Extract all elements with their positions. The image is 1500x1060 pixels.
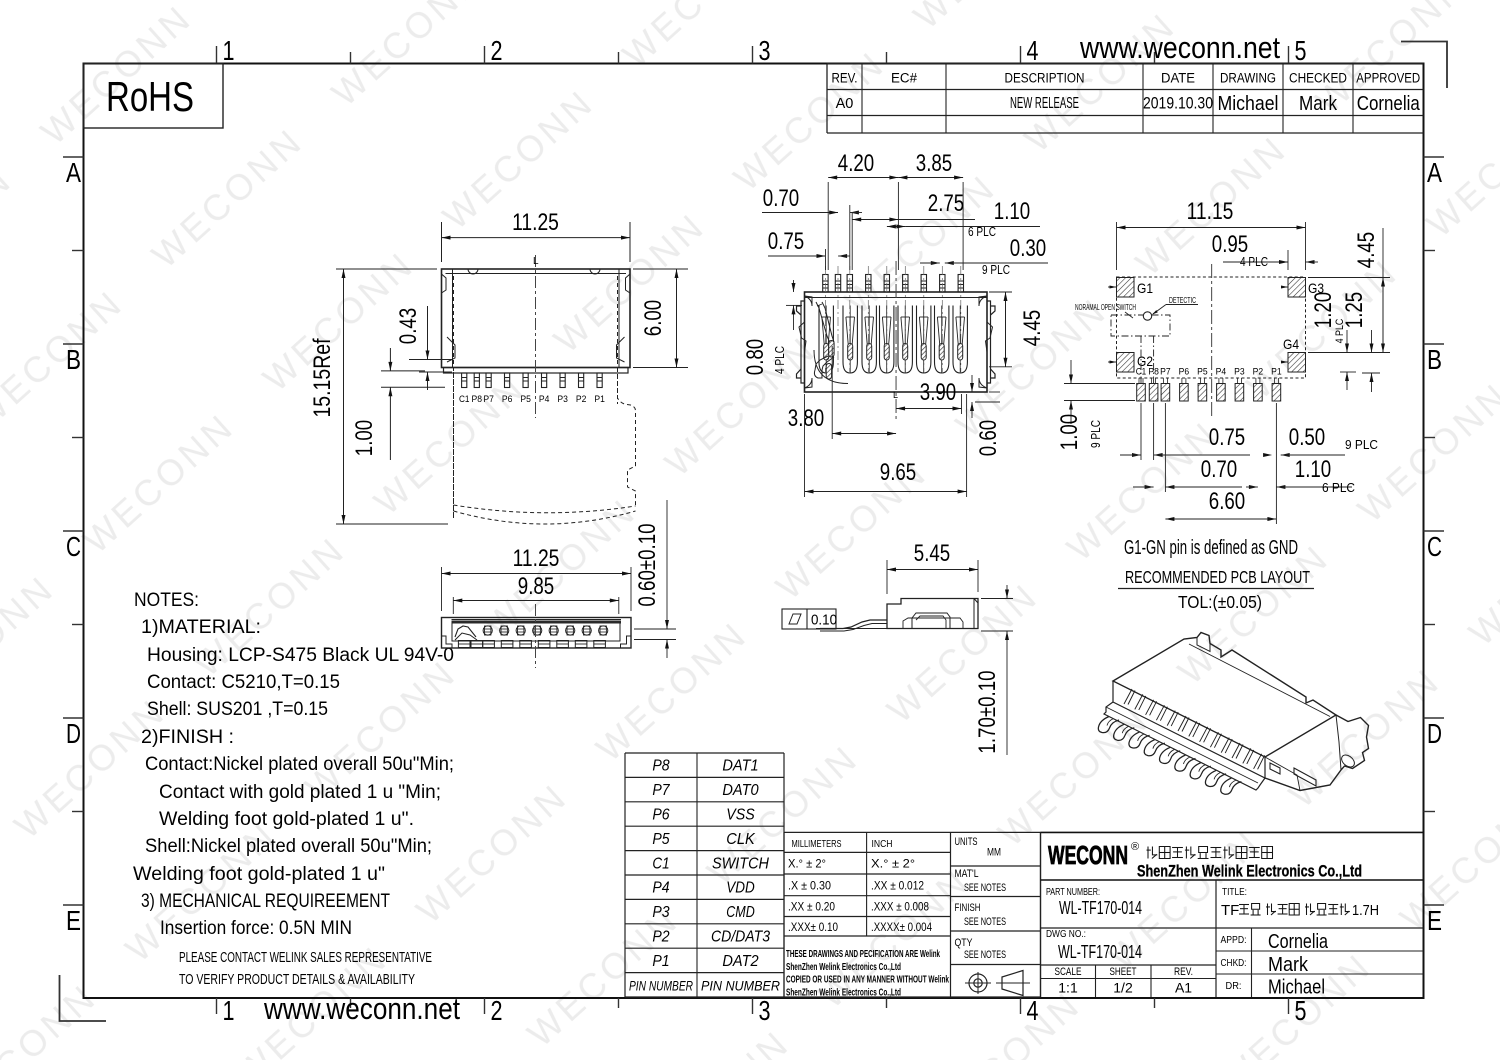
svg-text:0.75: 0.75	[1209, 424, 1245, 451]
svg-text:www.weconn.net: www.weconn.net	[1079, 30, 1280, 65]
svg-text:P3: P3	[557, 394, 568, 405]
svg-text:.XX ± 0.20: .XX ± 0.20	[788, 900, 835, 914]
svg-text:.XX ± 0.012: .XX ± 0.012	[871, 878, 924, 892]
svg-text:PIN NUMBER: PIN NUMBER	[701, 977, 780, 993]
svg-text:DRAWING: DRAWING	[1220, 71, 1276, 86]
svg-text:TOL:(±0.05): TOL:(±0.05)	[1178, 592, 1262, 612]
svg-text:Shell: SUS201 ,T=0.15: Shell: SUS201 ,T=0.15	[147, 699, 328, 720]
svg-text:CD/DAT3: CD/DAT3	[711, 929, 770, 946]
svg-text:Michael: Michael	[1268, 977, 1325, 999]
svg-text:E: E	[1427, 905, 1442, 936]
svg-text:A: A	[66, 157, 81, 188]
svg-text:REV.: REV.	[1174, 966, 1193, 978]
svg-text:Contact with gold plated 1 u ": Contact with gold plated 1 u "Min;	[159, 782, 441, 803]
svg-text:3: 3	[759, 995, 771, 1026]
svg-text:DAT2: DAT2	[722, 953, 759, 970]
svg-text:MILLIMETERS: MILLIMETERS	[792, 838, 842, 850]
svg-text:9.65: 9.65	[880, 459, 916, 486]
svg-text:L: L	[893, 390, 898, 400]
svg-text:ShenZhen Welink Electronics Co: ShenZhen Welink Electronics Co.,Ltd	[1137, 862, 1362, 881]
svg-text:SEE NOTES: SEE NOTES	[964, 949, 1006, 961]
svg-text:11.25: 11.25	[513, 545, 560, 572]
svg-text:DETECTIC: DETECTIC	[1169, 295, 1196, 305]
svg-text:B: B	[1427, 344, 1442, 375]
svg-text:P1: P1	[1271, 367, 1282, 378]
svg-text:4 PLC: 4 PLC	[773, 346, 787, 374]
svg-text:1.00: 1.00	[351, 420, 378, 456]
svg-text:A0: A0	[836, 96, 854, 112]
svg-text:ShenZhen Welink Electronics Co: ShenZhen Welink Electronics Co.,Ltd	[786, 961, 901, 973]
svg-text:Mark: Mark	[1268, 954, 1309, 976]
svg-text:TO VERIFY PRODUCT DETAILS & AV: TO VERIFY PRODUCT DETAILS & AVAILABILITY	[179, 972, 415, 988]
svg-text:2019.10.30: 2019.10.30	[1143, 94, 1213, 113]
svg-text:9 PLC: 9 PLC	[1089, 420, 1103, 448]
svg-text:1: 1	[223, 35, 235, 66]
svg-text:1.10: 1.10	[1295, 456, 1331, 483]
svg-text:VDD: VDD	[726, 880, 754, 897]
svg-text:Shell:Nickel plated overall 50: Shell:Nickel plated overall 50u"Min;	[145, 836, 432, 857]
svg-text:6.00: 6.00	[640, 300, 667, 336]
svg-text:ShenZhen Welink Electronics Co: ShenZhen Welink Electronics Co.,Ltd	[786, 986, 901, 998]
svg-text:CHECKED: CHECKED	[1289, 71, 1347, 86]
svg-text:Cornelia: Cornelia	[1357, 93, 1421, 115]
svg-text:3.90: 3.90	[920, 379, 956, 406]
svg-text:C: C	[1427, 531, 1442, 562]
svg-text:P7: P7	[483, 394, 494, 405]
svg-text:Michael: Michael	[1218, 93, 1279, 115]
svg-text:0.43: 0.43	[395, 308, 422, 344]
svg-text:2.75: 2.75	[928, 190, 964, 217]
svg-text:1.7H: 1.7H	[1352, 902, 1379, 919]
svg-text:APPD:: APPD:	[1221, 934, 1247, 946]
svg-text:B: B	[66, 344, 81, 375]
svg-text:P5: P5	[1197, 367, 1208, 378]
svg-text:0.10: 0.10	[811, 612, 837, 629]
svg-text:Mark: Mark	[1299, 93, 1338, 115]
svg-text:PLEASE CONTACT WELINK SALES RE: PLEASE CONTACT WELINK SALES REPRESENTATI…	[179, 950, 432, 966]
svg-text:Housing: LCP-S475 Black UL 94V: Housing: LCP-S475 Black UL 94V-0	[147, 645, 454, 666]
svg-text:DAT0: DAT0	[722, 782, 759, 799]
svg-text:NEW RELEASE: NEW RELEASE	[1010, 95, 1079, 112]
svg-text:.XXXX± 0.004: .XXXX± 0.004	[871, 920, 932, 934]
svg-text:RoHS: RoHS	[106, 73, 194, 120]
svg-text:NOTES:: NOTES:	[134, 590, 199, 611]
svg-text:VSS: VSS	[726, 807, 755, 824]
svg-text:P5: P5	[652, 831, 670, 848]
svg-text:1.20: 1.20	[1310, 292, 1337, 328]
svg-text:THESE DRAWINGS AND PECIFICATIO: THESE DRAWINGS AND PECIFICATION ARE Weli…	[786, 948, 940, 960]
svg-text:X.° ± 2°: X.° ± 2°	[871, 857, 915, 871]
svg-text:11.25: 11.25	[512, 209, 559, 236]
svg-text:P6: P6	[652, 807, 670, 824]
svg-text:TITLE:: TITLE:	[1222, 886, 1247, 898]
svg-text:WECONN: WECONN	[1048, 840, 1128, 870]
svg-text:P7: P7	[1160, 367, 1171, 378]
svg-text:0.30: 0.30	[1010, 235, 1046, 262]
svg-text:0.70: 0.70	[763, 185, 799, 212]
svg-text:.XXX± 0.10: .XXX± 0.10	[788, 920, 838, 934]
svg-text:0.60±0.10: 0.60±0.10	[634, 523, 661, 606]
svg-text:L: L	[533, 256, 539, 267]
svg-text:3) MECHANICAL REQUIREEMENT: 3) MECHANICAL REQUIREEMENT	[141, 891, 390, 912]
svg-text:P8: P8	[652, 758, 670, 775]
svg-text:5: 5	[1295, 995, 1307, 1026]
svg-text:REV.: REV.	[832, 71, 858, 86]
svg-text:P4: P4	[652, 880, 670, 897]
svg-text:P4: P4	[1216, 367, 1227, 378]
svg-text:1.70±0.10: 1.70±0.10	[974, 670, 1001, 753]
svg-text:P2: P2	[652, 929, 670, 946]
svg-text:WL-TF170-014: WL-TF170-014	[1058, 941, 1142, 962]
svg-text:0.75: 0.75	[768, 228, 804, 255]
svg-text:MAT'L: MAT'L	[955, 868, 979, 880]
svg-text:1.00: 1.00	[1056, 414, 1083, 450]
svg-text:®: ®	[1131, 841, 1139, 853]
svg-text:0.80: 0.80	[742, 339, 769, 375]
svg-text:2: 2	[491, 995, 503, 1026]
svg-text:Insertion force: 0.5N MIN: Insertion force: 0.5N MIN	[160, 918, 352, 939]
svg-text:DATE: DATE	[1161, 71, 1195, 86]
svg-text:P3: P3	[1234, 367, 1245, 378]
svg-text:5.45: 5.45	[914, 540, 950, 567]
svg-text:DESCRIPTION: DESCRIPTION	[1005, 71, 1085, 86]
svg-text:QTY: QTY	[955, 937, 974, 949]
svg-text:6 PLC: 6 PLC	[1322, 481, 1355, 495]
svg-text:Contact:Nickel plated overall: Contact:Nickel plated overall 50u"Min;	[145, 754, 454, 775]
svg-text:4: 4	[1027, 995, 1039, 1026]
svg-text:RECOMMENDED PCB LAYOUT: RECOMMENDED PCB LAYOUT	[1125, 567, 1310, 587]
svg-text:P6: P6	[1179, 367, 1190, 378]
svg-text:3.80: 3.80	[788, 405, 824, 432]
svg-text:CLK: CLK	[726, 831, 755, 848]
svg-text:P3: P3	[652, 904, 670, 921]
svg-text:G1-GN pin is defined as GND: G1-GN pin is defined as GND	[1124, 536, 1298, 559]
svg-text:P2: P2	[576, 394, 587, 405]
svg-text:C: C	[66, 531, 81, 562]
svg-text:1:1: 1:1	[1058, 980, 1078, 996]
svg-text:9 PLC: 9 PLC	[982, 263, 1010, 277]
svg-text:0.50: 0.50	[1289, 424, 1325, 451]
svg-text:Welding foot gold-plated 1 u".: Welding foot gold-plated 1 u".	[159, 809, 414, 830]
svg-text:6 PLC: 6 PLC	[968, 225, 996, 239]
svg-text:4 PLC: 4 PLC	[1334, 319, 1346, 344]
svg-text:D: D	[1427, 718, 1442, 749]
svg-text:DWG NO.:: DWG NO.:	[1046, 928, 1086, 940]
svg-text:3.85: 3.85	[916, 150, 952, 177]
svg-text:4: 4	[1027, 35, 1039, 66]
svg-text:P8: P8	[472, 394, 483, 405]
svg-text:G1: G1	[1137, 280, 1153, 296]
svg-text:SEE NOTES: SEE NOTES	[964, 916, 1006, 928]
svg-text:D: D	[66, 718, 81, 749]
svg-text:Welding foot gold-plated 1 u": Welding foot gold-plated 1 u"	[133, 864, 385, 885]
svg-text:P6: P6	[502, 394, 513, 405]
svg-text:APPROVED: APPROVED	[1356, 71, 1420, 86]
svg-text:UNITS: UNITS	[955, 836, 978, 848]
svg-text:P4: P4	[539, 394, 550, 405]
svg-text:NORAMAL OPEN SWITCH: NORAMAL OPEN SWITCH	[1075, 303, 1136, 312]
svg-text:9.85: 9.85	[518, 573, 554, 600]
svg-text:0.70: 0.70	[1201, 456, 1237, 483]
svg-text:Cornelia: Cornelia	[1268, 931, 1329, 953]
svg-text:COPIED OR USED IN ANY MANNER W: COPIED OR USED IN ANY MANNER WITHOUT Wel…	[786, 974, 949, 986]
svg-text:1/2: 1/2	[1113, 980, 1133, 996]
svg-text:E: E	[66, 905, 81, 936]
svg-text:FINISH: FINISH	[955, 902, 981, 914]
svg-text:4 PLC: 4 PLC	[1240, 255, 1268, 269]
svg-text:1.10: 1.10	[994, 198, 1030, 225]
svg-text:P7: P7	[652, 782, 670, 799]
svg-text:WL-TF170-014: WL-TF170-014	[1059, 897, 1142, 918]
svg-text:SEE NOTES: SEE NOTES	[964, 882, 1006, 894]
svg-text:1)MATERIAL:: 1)MATERIAL:	[141, 617, 261, 638]
svg-text:MM: MM	[987, 847, 1001, 859]
svg-text:4.20: 4.20	[838, 150, 874, 177]
svg-text:INCH: INCH	[872, 838, 893, 850]
svg-text:4.45: 4.45	[1019, 310, 1046, 346]
svg-text:11.15: 11.15	[1187, 198, 1234, 225]
svg-text:SHEET: SHEET	[1110, 966, 1137, 978]
svg-text:EC#: EC#	[891, 71, 917, 86]
svg-text:P5: P5	[520, 394, 531, 405]
svg-text:2)FINISH :: 2)FINISH :	[141, 727, 234, 748]
svg-text:TF: TF	[1221, 902, 1239, 919]
svg-text:P1: P1	[594, 394, 605, 405]
svg-text:X.° ± 2°: X.° ± 2°	[788, 857, 826, 871]
svg-text:CMD: CMD	[726, 904, 754, 921]
svg-text:4.45: 4.45	[1353, 232, 1380, 268]
svg-text:.XXX ± 0.008: .XXX ± 0.008	[871, 900, 929, 914]
svg-text:0.60: 0.60	[975, 420, 1002, 456]
svg-text:15.15Ref: 15.15Ref	[309, 338, 336, 417]
svg-text:DR:: DR:	[1226, 980, 1242, 992]
svg-text:9 PLC: 9 PLC	[1345, 438, 1378, 452]
svg-text:0.95: 0.95	[1212, 231, 1248, 258]
svg-text:P1: P1	[652, 953, 669, 970]
svg-text:SWITCH: SWITCH	[712, 855, 770, 872]
svg-text:C1: C1	[652, 855, 669, 872]
svg-text:PIN NUMBER: PIN NUMBER	[629, 977, 693, 993]
svg-text:.X ± 0.30: .X ± 0.30	[788, 878, 831, 892]
svg-text:2: 2	[491, 35, 503, 66]
svg-text:6.60: 6.60	[1209, 488, 1245, 515]
svg-text:C1: C1	[459, 394, 470, 405]
svg-text:A: A	[1427, 157, 1442, 188]
svg-text:SCALE: SCALE	[1055, 966, 1082, 978]
svg-text:www.weconn.net: www.weconn.net	[263, 991, 460, 1026]
svg-text:5: 5	[1295, 35, 1307, 66]
svg-text:Contact: C5210,T=0.15: Contact: C5210,T=0.15	[147, 672, 340, 693]
svg-text:1: 1	[223, 995, 235, 1026]
svg-text:3: 3	[759, 35, 771, 66]
svg-text:P2: P2	[1253, 367, 1264, 378]
svg-text:CHKD:: CHKD:	[1221, 957, 1247, 969]
svg-text:G4: G4	[1283, 336, 1299, 352]
svg-text:A1: A1	[1175, 980, 1192, 996]
svg-text:DAT1: DAT1	[722, 758, 758, 775]
